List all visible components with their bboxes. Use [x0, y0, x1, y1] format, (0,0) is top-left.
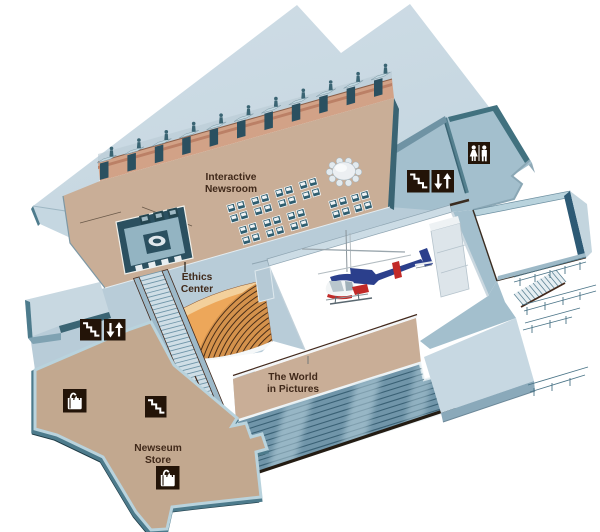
svg-text:EthicsCenter: EthicsCenter: [181, 272, 213, 295]
svg-text:The Worldin Pictures: The Worldin Pictures: [267, 372, 319, 395]
svg-text:InteractiveNewsroom: InteractiveNewsroom: [205, 172, 257, 195]
